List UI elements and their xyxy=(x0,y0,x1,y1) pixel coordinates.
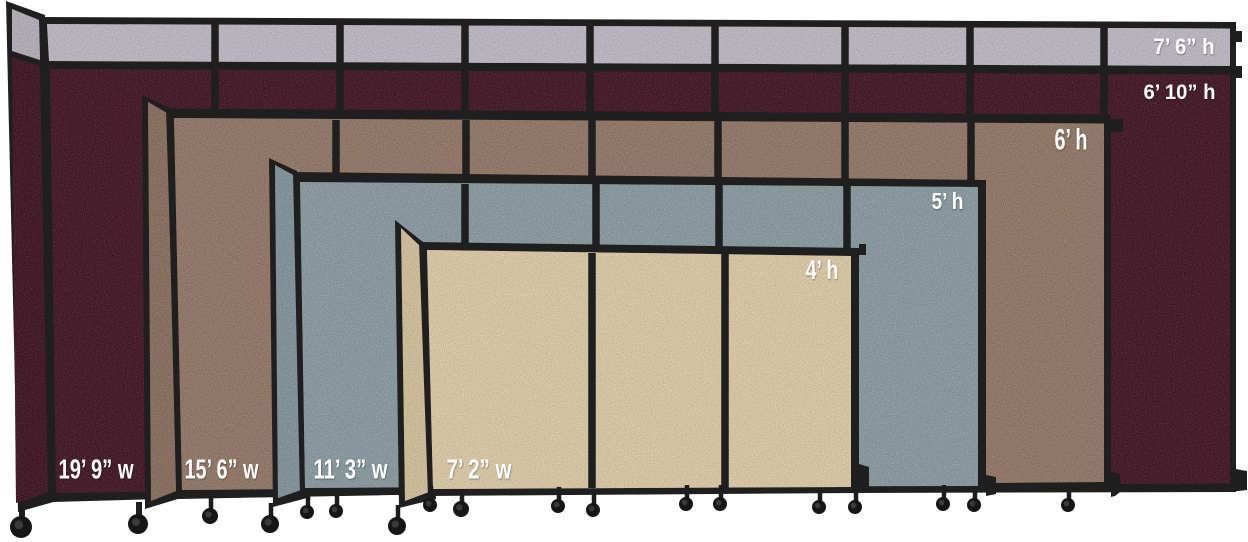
svg-text:7’ 6” h: 7’ 6” h xyxy=(1154,34,1215,59)
svg-text:6’ 10” h: 6’ 10” h xyxy=(1144,80,1216,104)
svg-text:5’ h: 5’ h xyxy=(932,188,964,214)
svg-text:19’ 9” w: 19’ 9” w xyxy=(59,454,134,485)
svg-text:11’ 3” w: 11’ 3” w xyxy=(314,454,388,485)
svg-text:4’ h: 4’ h xyxy=(806,255,839,285)
svg-text:7’ 2” w: 7’ 2” w xyxy=(447,454,512,485)
svg-text:15’ 6” w: 15’ 6” w xyxy=(185,454,259,485)
svg-text:6’ h: 6’ h xyxy=(1055,124,1088,157)
